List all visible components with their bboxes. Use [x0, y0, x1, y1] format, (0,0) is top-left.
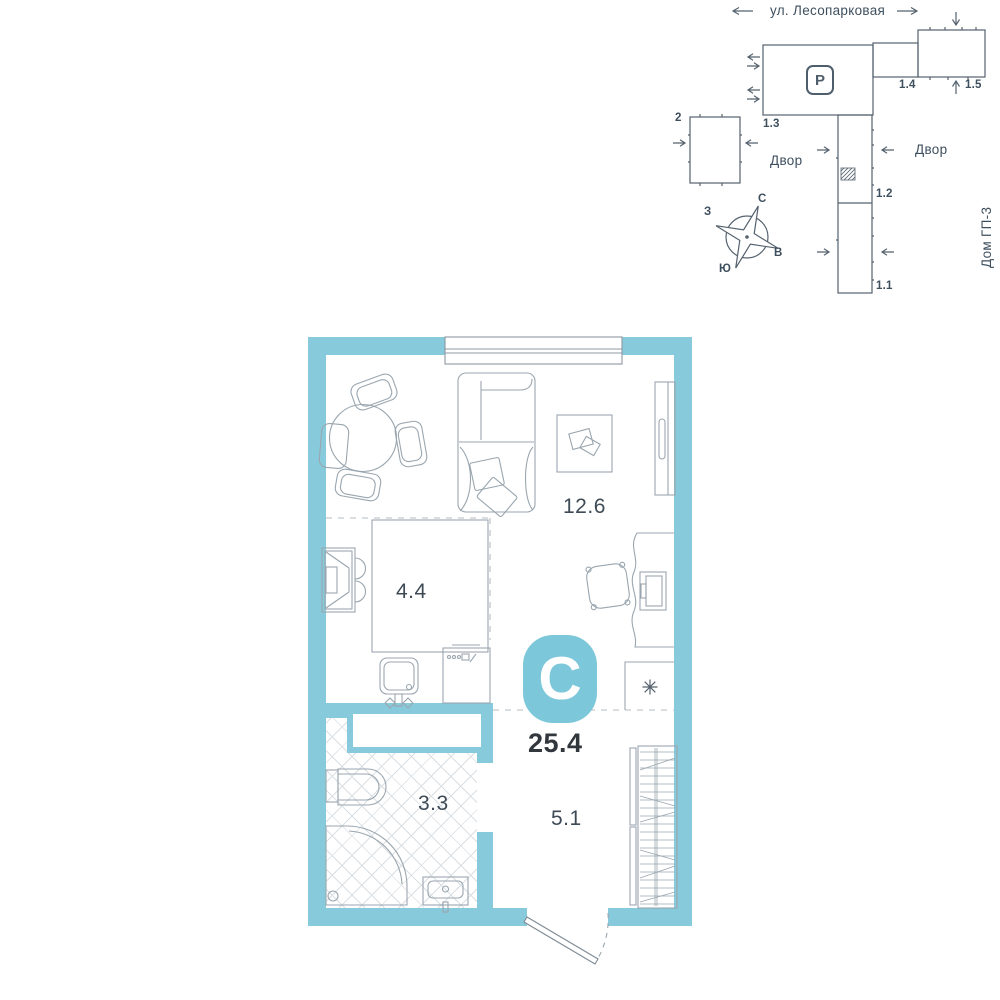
zone-dashed-lines — [326, 518, 674, 710]
stove — [322, 548, 366, 612]
desk-chair — [585, 562, 631, 610]
rug — [557, 415, 612, 472]
compass-east-label: В — [774, 247, 782, 259]
wardrobe — [630, 746, 677, 908]
building-1-5-outline — [918, 27, 985, 80]
compass-south-label: Ю — [719, 263, 731, 275]
washing-machine-icon — [643, 680, 658, 695]
living-area-label: 12.6 — [563, 495, 606, 519]
building-1-5-label: 1.5 — [965, 79, 982, 91]
floorplan-page: ул. Лесопарковая Двор Двор Дом ГП-3 P 2 … — [0, 0, 1000, 1000]
tv-unit — [655, 382, 675, 495]
entry-arrows-icon — [747, 54, 760, 102]
building-1-5-arrow-up-icon — [953, 81, 960, 94]
neighbor-house-label: Дом ГП-3 — [979, 207, 994, 268]
toilet — [326, 769, 386, 805]
yard-right-label: Двор — [915, 142, 947, 157]
building-1-4-label: 1.4 — [899, 79, 916, 91]
studio-logo: С — [523, 635, 597, 723]
parking-letter: P — [815, 72, 825, 89]
dining-chair — [394, 420, 428, 468]
kitchen-counter — [372, 520, 488, 652]
compass-icon — [716, 206, 778, 268]
total-area-label: 25.4 — [528, 728, 583, 759]
building-1-1-label: 1.1 — [876, 280, 893, 292]
sofa — [458, 373, 535, 517]
building-1-4-outline — [873, 43, 918, 77]
window — [445, 337, 622, 364]
parking-icon: P — [806, 65, 834, 95]
building-1-3-label: 1.3 — [763, 118, 780, 130]
kitchen-sink — [380, 658, 418, 708]
street-arrow-left-icon — [733, 8, 753, 15]
yard-left-label: Двор — [770, 153, 802, 168]
compass-west-label: З — [704, 206, 711, 218]
bathroom-area-label: 3.3 — [418, 792, 449, 816]
tower-strip-outline — [836, 115, 874, 293]
desk — [632, 533, 674, 647]
building-2-label: 2 — [675, 112, 682, 124]
building-1-2-label: 1.2 — [876, 188, 893, 200]
entry-door — [524, 913, 608, 964]
lineart-layer — [0, 0, 1000, 1000]
apartment-location-marker — [841, 168, 855, 180]
tower-arrows-icon — [817, 147, 894, 255]
shower — [326, 826, 407, 905]
dining-chair — [334, 468, 382, 502]
dining-table — [330, 405, 397, 472]
street-arrow-right-icon — [897, 8, 917, 15]
dishwasher — [443, 645, 490, 703]
building-2-arrows-icon — [673, 140, 758, 146]
street-label: ул. Лесопарковая — [770, 3, 885, 18]
studio-logo-letter: С — [538, 649, 581, 709]
compass-north-label: С — [758, 193, 766, 205]
dining-chair — [319, 423, 350, 469]
furniture-lines — [319, 337, 677, 964]
hallway-area-label: 5.1 — [551, 807, 582, 831]
kitchen-area-label: 4.4 — [396, 580, 427, 604]
dining-chair — [349, 372, 400, 412]
bathroom-sink — [423, 877, 468, 912]
building-2-outline — [688, 114, 742, 186]
building-1-5-arrow-down-icon — [953, 12, 960, 25]
